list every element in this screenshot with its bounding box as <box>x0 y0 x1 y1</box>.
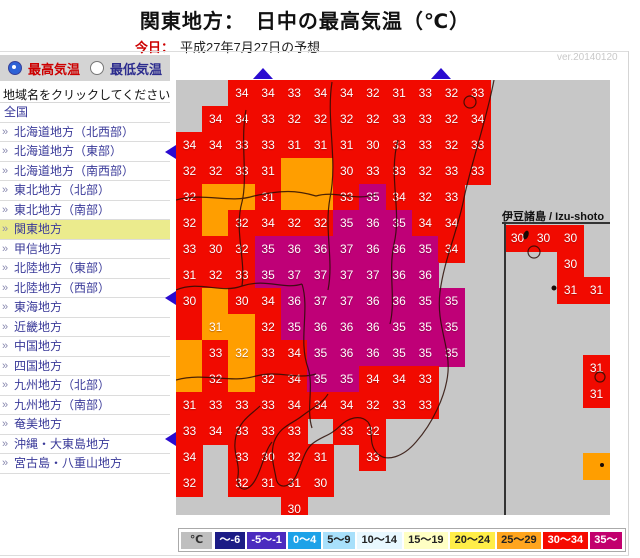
min-temp-radio-label[interactable]: 最低気温 <box>110 59 162 78</box>
temp-cell: 32 <box>228 340 255 367</box>
temp-cell: 31 <box>583 355 610 382</box>
temp-cell: 32 <box>438 132 465 159</box>
sidebar-item-label: 四国地方 <box>14 359 62 373</box>
temp-cell: 31 <box>333 132 360 159</box>
temp-cell: 33 <box>359 444 386 471</box>
sidebar-item-label: 近畿地方 <box>14 320 62 334</box>
sidebar-item[interactable]: »甲信地方 <box>0 240 170 260</box>
widget-frame-top <box>0 51 629 52</box>
temp-cell: 33 <box>228 418 255 445</box>
chevron-right-icon: » <box>2 162 8 181</box>
temp-cell: 32 <box>228 470 255 497</box>
sidebar-item[interactable]: »近畿地方 <box>0 318 170 338</box>
max-temp-radio-label[interactable]: 最高気温 <box>28 59 80 78</box>
chevron-right-icon: » <box>2 318 8 337</box>
chevron-right-icon: » <box>2 181 8 200</box>
temp-cell: 36 <box>333 314 360 341</box>
temp-cell: 32 <box>359 106 386 133</box>
temp-cell: 32 <box>307 210 334 237</box>
sidebar-item[interactable]: »奄美地方 <box>0 415 170 435</box>
temp-cell: 31 <box>307 444 334 471</box>
temp-cell: 36 <box>359 210 386 237</box>
temp-cell: 35 <box>307 366 334 393</box>
temp-cell: 33 <box>412 366 439 393</box>
temp-cell <box>176 366 203 393</box>
temp-cell: 34 <box>228 106 255 133</box>
temp-cell: 36 <box>359 236 386 263</box>
temp-cell: 33 <box>438 158 465 185</box>
sidebar-item-label: 北海道地方（東部） <box>14 144 122 158</box>
chevron-right-icon: » <box>2 435 8 454</box>
temp-cell: 32 <box>228 210 255 237</box>
temp-cell: 32 <box>438 80 465 107</box>
sidebar-item-label: 全国 <box>4 105 28 119</box>
min-temp-radio[interactable] <box>90 61 104 75</box>
temp-cell: 35 <box>412 340 439 367</box>
sidebar-item-label: 中国地方 <box>14 339 62 353</box>
temp-cell: 35 <box>255 236 282 263</box>
temperature-legend: ℃ ～-6-5～-10～45～910～1415～1920～2425～2930～3… <box>178 528 626 552</box>
temp-cell: 34 <box>202 418 229 445</box>
temp-cell: 31 <box>557 277 584 304</box>
temp-cell: 35 <box>281 314 308 341</box>
temp-cell <box>281 158 308 185</box>
temp-cell: 34 <box>202 106 229 133</box>
temp-cell: 33 <box>255 132 282 159</box>
legend-range: -5～-1 <box>247 532 287 549</box>
izu-inset-underline <box>502 222 610 224</box>
temp-cell: 31 <box>281 470 308 497</box>
temp-cell: 35 <box>359 184 386 211</box>
temp-cell: 37 <box>281 262 308 289</box>
temp-cell: 35 <box>412 314 439 341</box>
widget-frame-bottom <box>0 555 629 556</box>
temp-cell: 30 <box>228 288 255 315</box>
sidebar-item-label: 九州地方（南部） <box>14 398 110 412</box>
temp-cell: 34 <box>386 184 413 211</box>
temp-cell: 36 <box>281 236 308 263</box>
temp-cell: 33 <box>228 132 255 159</box>
temp-cell <box>228 314 255 341</box>
sidebar-item[interactable]: »沖縄・大東島地方 <box>0 435 170 455</box>
temp-cell: 37 <box>307 262 334 289</box>
temp-cell: 35 <box>333 210 360 237</box>
temp-cell: 32 <box>176 158 203 185</box>
page-title: 関東地方： 日中の最高気温（℃） <box>0 5 610 34</box>
sidebar-item[interactable]: »北陸地方（西部） <box>0 279 170 299</box>
pan-left-arrow-icon[interactable] <box>165 145 176 159</box>
temp-cell: 31 <box>255 158 282 185</box>
temp-cell: 33 <box>202 340 229 367</box>
temp-cell: 34 <box>255 288 282 315</box>
chevron-right-icon: » <box>2 142 8 161</box>
temp-cell: 32 <box>281 106 308 133</box>
temp-cell: 33 <box>202 392 229 419</box>
version-label: ver.20140120 <box>557 52 618 63</box>
chevron-right-icon: » <box>2 201 8 220</box>
temp-cell: 34 <box>202 132 229 159</box>
temp-cell <box>307 158 334 185</box>
temp-cell: 30 <box>176 288 203 315</box>
temp-cell: 31 <box>255 470 282 497</box>
temp-cell: 34 <box>176 132 203 159</box>
subtitle: 今日：平成27年7月27日の予想 <box>135 37 320 56</box>
temp-cell: 33 <box>412 132 439 159</box>
temp-cell: 33 <box>255 418 282 445</box>
temp-cell: 30 <box>504 225 531 252</box>
temp-cell: 33 <box>255 392 282 419</box>
legend-range: 0～4 <box>288 532 320 549</box>
temp-cell: 30 <box>359 132 386 159</box>
sidebar-item[interactable]: »東北地方（南部） <box>0 201 170 221</box>
temp-cell <box>307 184 334 211</box>
temp-cell: 30 <box>202 236 229 263</box>
sidebar-item-label: 奄美地方 <box>14 417 62 431</box>
chevron-right-icon: » <box>2 279 8 298</box>
temp-cell: 33 <box>464 132 491 159</box>
legend-unit: ℃ <box>181 532 212 549</box>
chevron-right-icon: » <box>2 337 8 356</box>
temp-cell: 31 <box>583 277 610 304</box>
temperature-map: 3434333434323133323334343332323232333332… <box>176 80 610 515</box>
temp-cell: 31 <box>176 262 203 289</box>
temp-cell: 34 <box>281 366 308 393</box>
temp-cell: 33 <box>255 106 282 133</box>
temp-cell: 30 <box>557 225 584 252</box>
sidebar-item-label: 北陸地方（西部） <box>14 281 110 295</box>
temp-cell: 34 <box>359 366 386 393</box>
sidebar-item[interactable]: 全国 <box>0 103 170 123</box>
temp-cell: 31 <box>255 184 282 211</box>
temp-cell: 35 <box>386 340 413 367</box>
temp-cell: 33 <box>228 158 255 185</box>
temp-cell: 32 <box>412 158 439 185</box>
izu-inset-divider <box>504 222 506 515</box>
temp-cell: 33 <box>176 236 203 263</box>
temp-cell: 33 <box>386 106 413 133</box>
sidebar-item-label: 沖縄・大東島地方 <box>14 437 110 451</box>
sidebar-item-label: 東海地方 <box>14 300 62 314</box>
sidebar-item[interactable]: »北海道地方（北西部） <box>0 123 170 143</box>
legend-range: 5～9 <box>323 532 355 549</box>
temp-cell: 30 <box>333 158 360 185</box>
temp-cell: 32 <box>176 470 203 497</box>
legend-range: 10～14 <box>357 532 402 549</box>
temp-cell: 30 <box>281 496 308 515</box>
sidebar-item-label: 九州地方（北部） <box>14 378 110 392</box>
temp-cell: 30 <box>557 251 584 278</box>
sidebar-item[interactable]: »九州地方（南部） <box>0 396 170 416</box>
temp-cell <box>281 184 308 211</box>
temp-cell: 33 <box>176 418 203 445</box>
temp-cell <box>202 210 229 237</box>
chevron-right-icon: » <box>2 220 8 239</box>
sidebar-item[interactable]: »東海地方 <box>0 298 170 318</box>
pan-up-arrow-icon[interactable] <box>431 68 451 79</box>
temp-cell: 31 <box>307 132 334 159</box>
chevron-right-icon: » <box>2 396 8 415</box>
sidebar-item-label: 関東地方 <box>14 222 62 236</box>
temp-cell: 34 <box>255 80 282 107</box>
temp-cell: 32 <box>202 262 229 289</box>
legend-range: 35～ <box>590 532 622 549</box>
temp-cell: 30 <box>530 225 557 252</box>
temp-cell: 33 <box>386 158 413 185</box>
temp-cell <box>202 288 229 315</box>
temp-cell: 32 <box>176 210 203 237</box>
temp-cell: 33 <box>412 80 439 107</box>
legend-range: 30～34 <box>543 532 588 549</box>
temp-cell: 33 <box>386 132 413 159</box>
temp-cell: 31 <box>176 392 203 419</box>
chevron-right-icon: » <box>2 123 8 142</box>
temp-cell: 37 <box>333 236 360 263</box>
temp-cell: 33 <box>333 184 360 211</box>
temp-cell: 37 <box>359 262 386 289</box>
temp-cell: 34 <box>464 106 491 133</box>
widget-frame-right <box>628 51 629 556</box>
temp-cell: 31 <box>202 314 229 341</box>
temp-cell: 32 <box>281 210 308 237</box>
legend-range: 20～24 <box>450 532 495 549</box>
temp-cell: 33 <box>228 392 255 419</box>
temp-cell: 35 <box>307 340 334 367</box>
temp-cell: 33 <box>228 444 255 471</box>
temp-cell: 32 <box>228 236 255 263</box>
sidebar-item[interactable]: »北海道地方（南西部） <box>0 162 170 182</box>
sidebar-item-label: 東北地方（北部） <box>14 183 110 197</box>
sidebar-instruction: 地域名をクリックしてください <box>3 86 170 103</box>
temp-cell: 33 <box>281 80 308 107</box>
pan-left-arrow-icon[interactable] <box>165 291 176 305</box>
sidebar-item-label: 北海道地方（南西部） <box>14 164 134 178</box>
legend-range: 15～19 <box>404 532 449 549</box>
temp-cell: 32 <box>202 366 229 393</box>
temp-cell: 32 <box>281 444 308 471</box>
temp-cell: 33 <box>255 340 282 367</box>
temp-cell: 34 <box>307 392 334 419</box>
temp-cell: 32 <box>202 158 229 185</box>
temp-cell: 35 <box>412 288 439 315</box>
temp-cell: 31 <box>281 132 308 159</box>
temp-cell: 32 <box>359 392 386 419</box>
temp-cell: 32 <box>412 184 439 211</box>
max-temp-radio[interactable] <box>8 61 22 75</box>
chevron-right-icon: » <box>2 357 8 376</box>
temp-cell: 33 <box>386 392 413 419</box>
temp-cell: 36 <box>412 262 439 289</box>
temp-cell: 36 <box>307 236 334 263</box>
temp-cell: 33 <box>464 158 491 185</box>
temp-cell <box>176 314 203 341</box>
temp-cell: 36 <box>386 236 413 263</box>
temp-cell: 36 <box>359 314 386 341</box>
temp-cell: 37 <box>333 262 360 289</box>
temp-cell <box>228 366 255 393</box>
sidebar-item[interactable]: »東北地方（北部） <box>0 181 170 201</box>
temp-cell <box>176 340 203 367</box>
temp-cell: 35 <box>333 366 360 393</box>
temp-cell: 35 <box>438 340 465 367</box>
chevron-right-icon: » <box>2 298 8 317</box>
chevron-right-icon: » <box>2 240 8 259</box>
temp-cell: 35 <box>386 314 413 341</box>
temp-cell: 33 <box>228 262 255 289</box>
temp-cell: 34 <box>281 392 308 419</box>
temp-cell: 34 <box>438 236 465 263</box>
temp-cell: 32 <box>333 106 360 133</box>
sidebar-item[interactable]: »関東地方 <box>0 220 170 240</box>
temp-cell: 34 <box>438 210 465 237</box>
temp-cell: 34 <box>281 340 308 367</box>
temp-cell: 33 <box>359 158 386 185</box>
temp-cell: 32 <box>255 314 282 341</box>
temp-cell: 37 <box>333 288 360 315</box>
temp-cell: 32 <box>255 366 282 393</box>
sidebar-item-label: 北海道地方（北西部） <box>14 125 134 139</box>
temp-cell: 36 <box>359 288 386 315</box>
temp-cell: 33 <box>281 418 308 445</box>
temp-cell: 32 <box>359 418 386 445</box>
temp-cell: 30 <box>307 470 334 497</box>
legend-range: ～-6 <box>215 532 245 549</box>
temp-cell: 35 <box>438 314 465 341</box>
temp-cell: 34 <box>255 210 282 237</box>
temp-cell <box>202 184 229 211</box>
temp-cell <box>583 453 610 480</box>
temp-cell: 34 <box>176 444 203 471</box>
pan-left-arrow-icon[interactable] <box>165 432 176 446</box>
temp-cell: 32 <box>438 106 465 133</box>
temp-cell: 35 <box>386 210 413 237</box>
temp-cell: 34 <box>386 366 413 393</box>
sidebar-item-label: 東北地方（南部） <box>14 203 110 217</box>
temp-cell: 36 <box>307 314 334 341</box>
temp-cell: 36 <box>359 340 386 367</box>
temp-cell: 32 <box>176 184 203 211</box>
chevron-right-icon: » <box>2 415 8 434</box>
temp-cell: 35 <box>255 262 282 289</box>
temp-cell: 34 <box>228 80 255 107</box>
temp-cell: 32 <box>359 80 386 107</box>
sidebar-item-label: 甲信地方 <box>14 242 62 256</box>
temp-cell: 34 <box>333 80 360 107</box>
temp-cell: 35 <box>438 288 465 315</box>
temp-cell: 32 <box>307 106 334 133</box>
temp-cell: 36 <box>281 288 308 315</box>
temp-cell: 34 <box>307 80 334 107</box>
temp-cell: 35 <box>412 236 439 263</box>
sidebar-item[interactable]: »北陸地方（東部） <box>0 259 170 279</box>
temp-cell: 34 <box>412 210 439 237</box>
chevron-right-icon: » <box>2 259 8 278</box>
temp-cell <box>228 184 255 211</box>
forecast-date: 平成27年7月27日の予想 <box>180 40 320 55</box>
sidebar-item-label: 宮古島・八重山地方 <box>14 456 122 470</box>
temp-cell: 33 <box>333 418 360 445</box>
today-label: 今日： <box>135 40 174 55</box>
region-list: 全国»北海道地方（北西部）»北海道地方（東部）»北海道地方（南西部）»東北地方（… <box>0 102 170 474</box>
pan-up-arrow-icon[interactable] <box>253 68 273 79</box>
legend-range: 25～29 <box>497 532 542 549</box>
sidebar-item[interactable]: »四国地方 <box>0 357 170 377</box>
sidebar-item[interactable]: »北海道地方（東部） <box>0 142 170 162</box>
temp-cell: 37 <box>307 288 334 315</box>
sidebar-item[interactable]: »宮古島・八重山地方 <box>0 454 170 474</box>
sidebar-item[interactable]: »九州地方（北部） <box>0 376 170 396</box>
temp-cell: 33 <box>464 80 491 107</box>
temp-cell: 33 <box>438 184 465 211</box>
temp-cell: 36 <box>386 262 413 289</box>
temp-cell: 30 <box>255 444 282 471</box>
chevron-right-icon: » <box>2 376 8 395</box>
sidebar-item[interactable]: »中国地方 <box>0 337 170 357</box>
temp-cell: 31 <box>583 381 610 408</box>
sidebar-item-label: 北陸地方（東部） <box>14 261 110 275</box>
temp-cell: 34 <box>333 392 360 419</box>
temp-cell: 36 <box>386 288 413 315</box>
temp-cell: 36 <box>333 340 360 367</box>
chevron-right-icon: » <box>2 454 8 473</box>
temp-cell: 31 <box>386 80 413 107</box>
temp-cell: 33 <box>412 106 439 133</box>
temperature-mode-bar: 最高気温 最低気温 <box>0 55 170 81</box>
temp-cell: 33 <box>412 392 439 419</box>
